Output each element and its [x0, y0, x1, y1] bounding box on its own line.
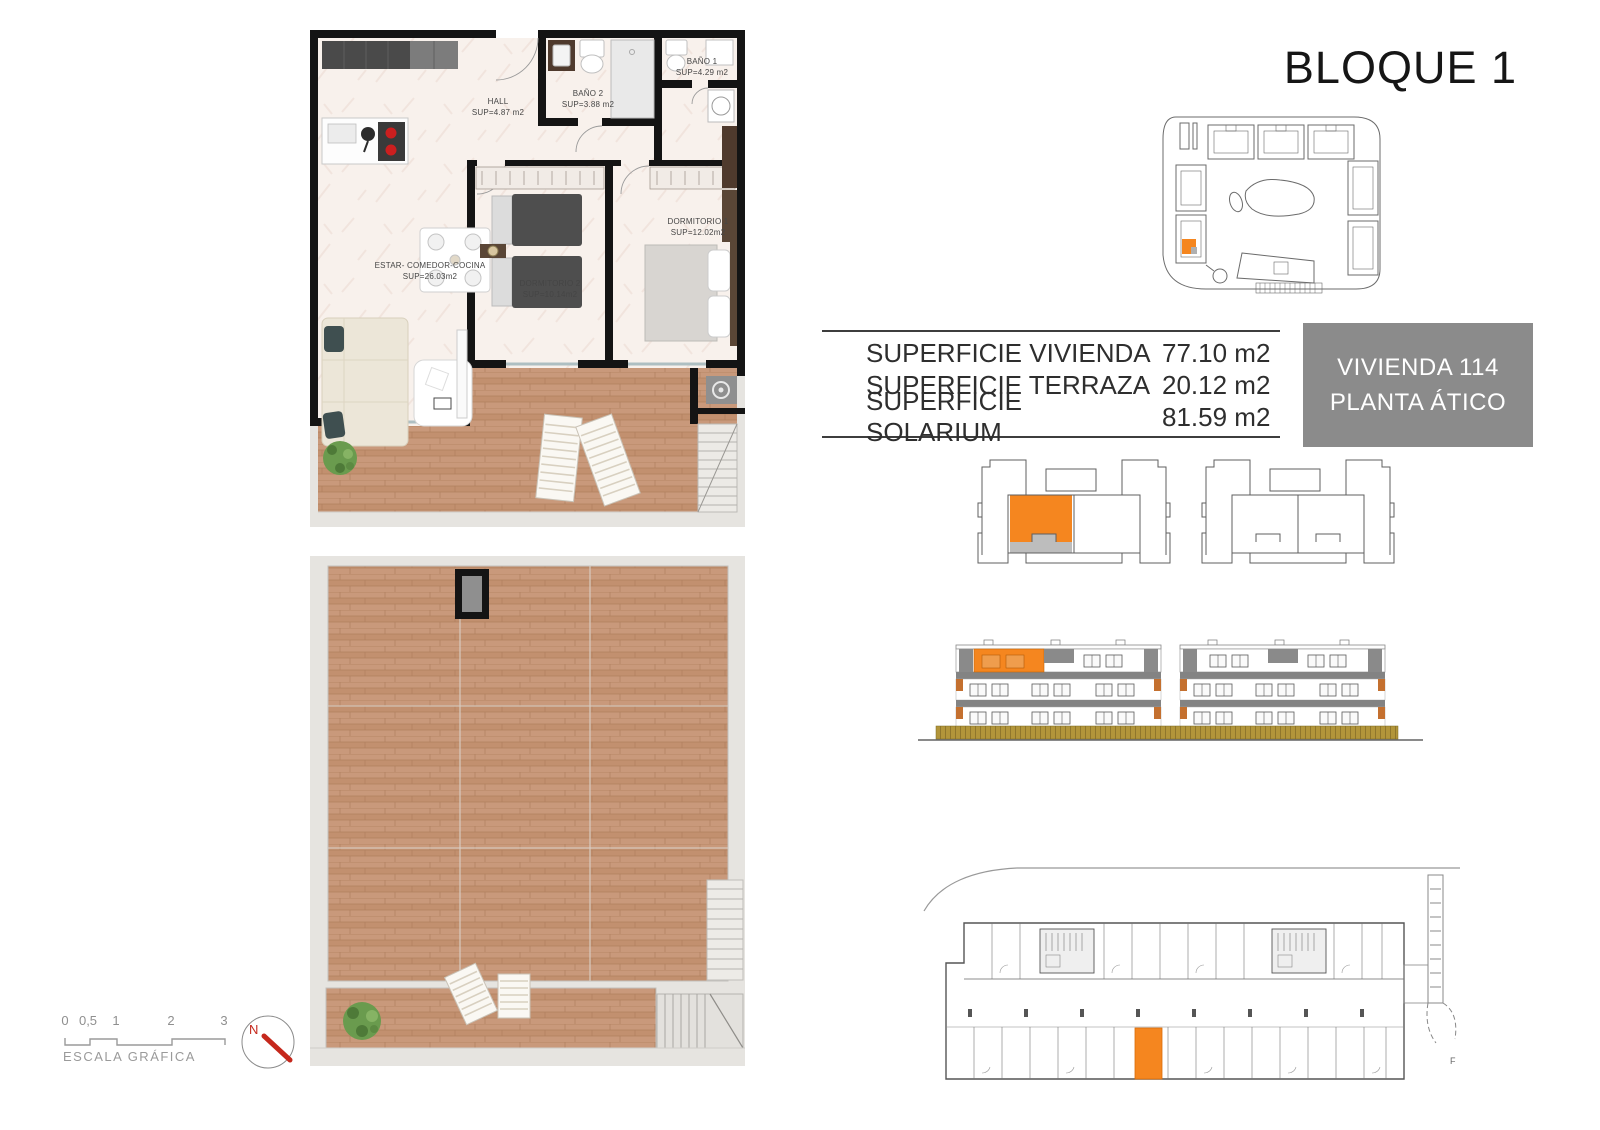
parasol-base — [706, 376, 737, 404]
unit-porch — [1191, 247, 1197, 254]
sun-lounger — [498, 974, 530, 1018]
apartment-floor-plan: HALL SUP=4.87 m2 BAÑO 2 SUP=3.88 m2 BAÑO… — [310, 30, 745, 527]
room-label-dormitorio2: DORMITORIO 2 SUP=10.14m2 — [520, 278, 581, 300]
room-name: BAÑO 1 — [676, 56, 728, 67]
road-line — [924, 868, 1460, 911]
sheet-mark: F — [1450, 1056, 1456, 1066]
site-building — [1208, 125, 1254, 159]
keyplan-right — [1198, 455, 1398, 573]
tv-board — [457, 330, 467, 418]
page-title: BLOQUE 1 — [1262, 42, 1517, 94]
surface-label: SUPERFICIE SOLARIUM — [866, 386, 1162, 448]
ground-floor-plan — [922, 845, 1467, 1093]
scale-bar: 0 0,5 1 2 3 ESCALA GRÁFICA — [55, 1005, 240, 1067]
site-building — [1348, 161, 1378, 215]
plan-sheet: HALL SUP=4.87 m2 BAÑO 2 SUP=3.88 m2 BAÑO… — [0, 0, 1600, 1130]
room-area: SUP=4.29 m2 — [676, 67, 728, 78]
leisure-area — [1237, 253, 1314, 283]
skylight — [455, 569, 489, 619]
ramp — [1427, 875, 1456, 1043]
room-area: SUP=10.14m2 — [520, 289, 581, 300]
sun-lounger — [536, 414, 583, 502]
room-area: SUP=26.03m2 — [375, 271, 486, 282]
north-label: N — [249, 1022, 258, 1037]
keyplan-outline — [978, 460, 1170, 563]
solarium-plan — [310, 556, 745, 1078]
room-area: SUP=3.88 m2 — [562, 99, 614, 110]
solarium-deck — [328, 566, 728, 981]
unit-number: VIVIENDA 114 — [1337, 354, 1499, 382]
north-compass: N — [240, 1008, 300, 1078]
plant — [323, 441, 357, 475]
site-building — [1176, 165, 1206, 211]
room-label-estar: ESTAR- COMEDOR-COCINA SUP=26.03m2 — [375, 260, 486, 282]
room-area: SUP=4.87 m2 — [472, 107, 524, 118]
scale-caption: ESCALA GRÁFICA — [63, 1049, 196, 1064]
surface-value: 77.10 m2 — [1162, 338, 1270, 369]
north-needle — [264, 1036, 290, 1060]
pool — [1245, 179, 1314, 216]
room-name: HALL — [472, 96, 524, 107]
solarium-drawing — [310, 556, 745, 1078]
room-name: ESTAR- COMEDOR-COCINA — [375, 260, 486, 271]
elevation-building-2 — [1180, 640, 1385, 737]
upper-stairs — [707, 880, 743, 980]
building-outline — [946, 923, 1404, 1079]
room-label-bano2: BAÑO 2 SUP=3.88 m2 — [562, 88, 614, 110]
site-building — [1308, 125, 1354, 159]
plant — [343, 1002, 381, 1040]
unit-info-box: VIVIENDA 114 PLANTA ÁTICO — [1303, 323, 1533, 447]
unit-floor: PLANTA ÁTICO — [1330, 389, 1506, 417]
fence — [936, 726, 1398, 739]
stair-core — [1272, 929, 1326, 973]
room-name: DORMITORIO 1 — [668, 216, 729, 227]
room-label-bano1: BAÑO 1 SUP=4.29 m2 — [676, 56, 728, 78]
keyplan-outline — [1202, 460, 1394, 563]
room-label-hall: HALL SUP=4.87 m2 — [472, 96, 524, 118]
surface-label: SUPERFICIE VIVIENDA — [866, 338, 1162, 369]
surface-value: 81.59 m2 — [1162, 402, 1270, 433]
site-building — [1348, 221, 1378, 275]
building-elevations — [918, 622, 1423, 762]
room-area: SUP=12.02m2 — [668, 227, 729, 238]
table-row: SUPERFICIE SOLARIUM 81.59 m2 — [822, 401, 1280, 433]
site-plan-drawing — [1142, 103, 1397, 308]
room-name: BAÑO 2 — [562, 88, 614, 99]
keyplan-left — [974, 455, 1174, 573]
highlighted-unit — [1135, 1028, 1162, 1079]
surface-value: 20.12 m2 — [1162, 370, 1270, 401]
terrace-stairs — [698, 424, 737, 512]
site-building — [1258, 125, 1304, 159]
sofa — [322, 318, 408, 446]
site-key-plan — [1142, 103, 1397, 308]
stair-core — [1040, 929, 1094, 973]
table-row: SUPERFICIE VIVIENDA 77.10 m2 — [822, 337, 1280, 369]
room-label-dormitorio1: DORMITORIO 1 SUP=12.02m2 — [668, 216, 729, 238]
room-name: DORMITORIO 2 — [520, 278, 581, 289]
lower-stairs — [657, 994, 743, 1048]
surface-table: SUPERFICIE VIVIENDA 77.10 m2 SUPERFICIE … — [822, 330, 1280, 438]
